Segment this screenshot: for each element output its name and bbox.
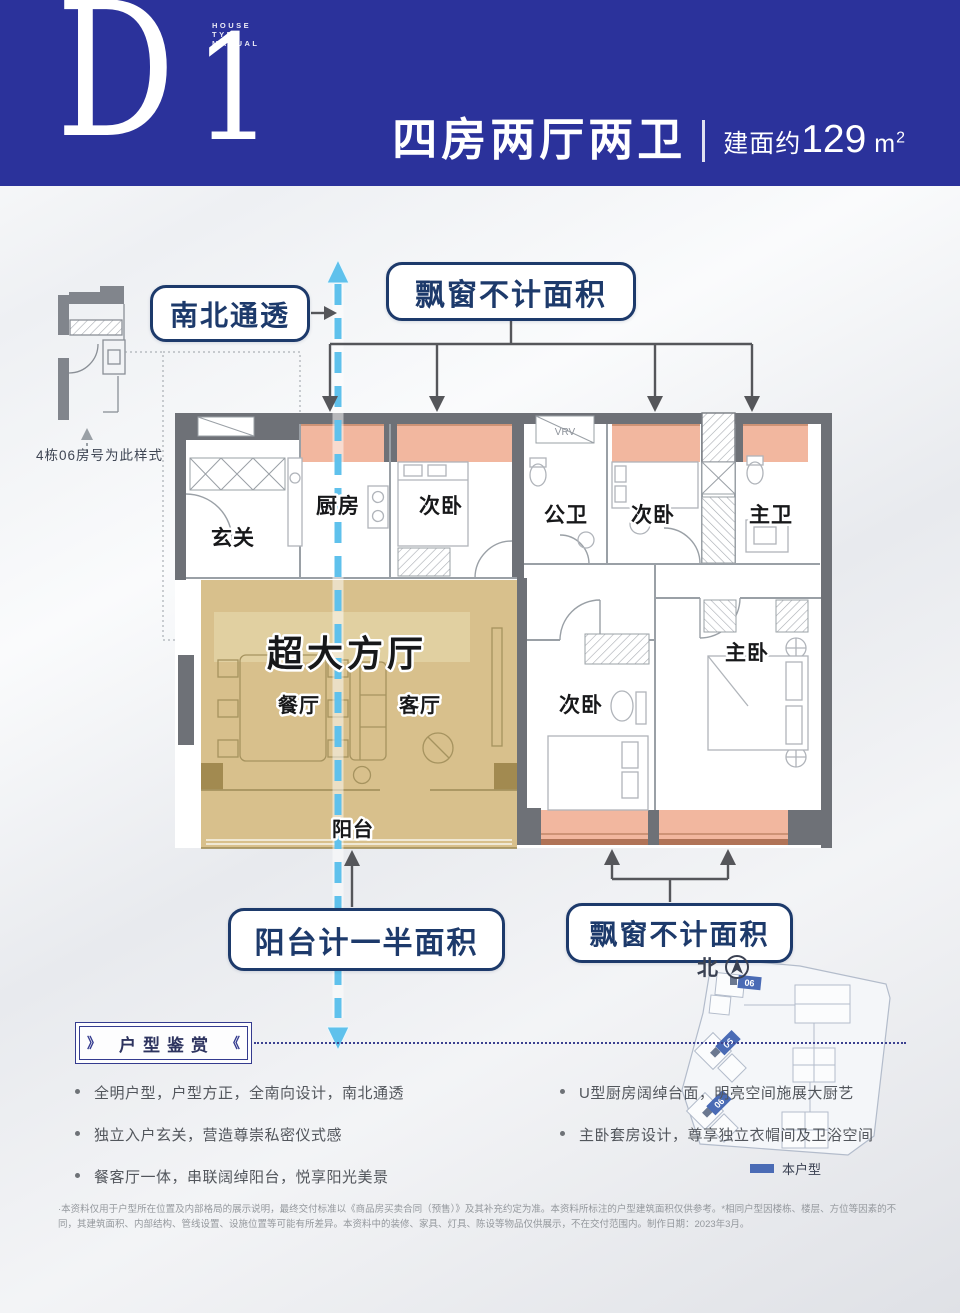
- header-title-group: 四房两厅两卫 建面约129 m2: [392, 117, 906, 162]
- bullet-dot-icon: [75, 1089, 80, 1094]
- bay-window: [540, 810, 648, 845]
- north-label: 北: [697, 952, 718, 982]
- bay-window: [658, 810, 788, 845]
- vrv-box: VRV: [536, 416, 594, 443]
- feature-item: 全明户型，户型方正，全南向设计，南北通透: [75, 1082, 404, 1103]
- house-type-page: D 1 HOUSE TYPE MANUAL 四房两厅两卫 建面约129 m2: [0, 0, 960, 1313]
- floor-plan: VRV: [175, 413, 832, 848]
- feature-text: 全明户型，户型方正，全南向设计，南北通透: [94, 1082, 404, 1103]
- room-label-entry: 玄关: [211, 526, 255, 550]
- bullet-dot-icon: [560, 1131, 565, 1136]
- room-label-living: 客厅: [398, 693, 441, 717]
- room-label-bedroom-top-left: 次卧: [419, 494, 463, 518]
- feature-item: U型厨房阔绰台面，明亮空间施展大厨艺: [560, 1082, 854, 1103]
- room-label-bedroom-top-right: 次卧: [631, 503, 675, 527]
- axis-arrow-down: [327, 1027, 349, 1050]
- feature-text: 餐客厅一体，串联阔绰阳台，悦享阳光美景: [94, 1166, 389, 1187]
- disclaimer-text: ·本资料仅用于户型所在位置及内部格局的展示说明，最终交付标准以《商品房买卖合同（…: [58, 1202, 910, 1232]
- room-label-bedroom-bottom: 次卧: [559, 693, 603, 717]
- bullet-dot-icon: [75, 1173, 80, 1178]
- logo-caption: HOUSE TYPE MANUAL: [212, 21, 260, 48]
- north-indicator: 北: [697, 952, 750, 982]
- logo-caption-line: MANUAL: [212, 39, 260, 48]
- room-label-dining: 餐厅: [278, 693, 320, 717]
- callout-bay-window-bottom: 飘窗不计面积: [566, 903, 793, 963]
- sample-unit-note: 4栋06房号为此样式: [36, 444, 163, 464]
- area-unit: m: [874, 130, 896, 158]
- area-prefix: 建面约: [723, 130, 801, 158]
- room-label-public-bath: 公卫: [544, 504, 588, 527]
- logo-letter: D: [56, 0, 175, 164]
- room-label-balcony: 阳台: [332, 817, 374, 841]
- bullet-dot-icon: [75, 1131, 80, 1136]
- chevron-left-icon: 《: [226, 1033, 240, 1053]
- floor-plan-canvas: VRV 玄关 厨房 次卧 公卫 次卧 主卫 超大方厅 餐厅 客厅: [0, 186, 960, 1313]
- room-label-grand-hall: 超大方厅: [267, 633, 427, 674]
- balcony-wall-stub: [494, 763, 517, 790]
- feature-item: 独立入户玄关，营造尊崇私密仪式感: [75, 1124, 342, 1145]
- room-label-master-bedroom: 主卧: [725, 642, 769, 665]
- feature-text: 独立入户玄关，营造尊崇私密仪式感: [94, 1124, 342, 1145]
- header-band: D 1 HOUSE TYPE MANUAL 四房两厅两卫 建面约129 m2: [0, 0, 960, 186]
- page-title: 四房两厅两卫: [392, 117, 686, 162]
- feature-text: U型厨房阔绰台面，明亮空间施展大厨艺: [579, 1082, 854, 1103]
- axis-arrow-up: [327, 260, 349, 283]
- feature-item: 主卧套房设计，尊享独立衣帽间及卫浴空间: [560, 1124, 874, 1145]
- room-label-kitchen: 厨房: [316, 494, 360, 518]
- appreciation-banner: 》 户型鉴赏 《: [75, 1022, 252, 1064]
- legend-label: 本户型: [782, 1159, 821, 1178]
- banner-dotted-rule: [254, 1042, 906, 1044]
- room-label-master-bath: 主卫: [749, 504, 793, 527]
- chevron-right-icon: 》: [87, 1033, 101, 1053]
- vrv-label: VRV: [555, 427, 576, 438]
- feature-text: 主卧套房设计，尊享独立衣帽间及卫浴空间: [579, 1124, 874, 1145]
- unit-sample-diagram: [58, 286, 125, 420]
- appreciation-banner-inner: 》 户型鉴赏 《: [79, 1026, 248, 1060]
- bullet-dot-icon: [560, 1089, 565, 1094]
- balcony-wall-stub: [201, 763, 223, 790]
- legend-swatch: [750, 1164, 774, 1173]
- site-legend: 本户型: [750, 1159, 821, 1178]
- feature-item: 餐客厅一体，串联阔绰阳台，悦享阳光美景: [75, 1166, 389, 1187]
- callout-bay-window-top: 飘窗不计面积: [386, 262, 636, 321]
- built-area: 建面约129 m2: [723, 120, 906, 162]
- logo-caption-line: HOUSE: [212, 21, 260, 30]
- area-value: 129: [801, 118, 866, 161]
- callout-north-south: 南北通透: [150, 285, 310, 342]
- compass-icon: [724, 954, 750, 980]
- area-sup: 2: [896, 130, 906, 147]
- appreciation-title: 户型鉴赏: [112, 1031, 215, 1056]
- logo-caption-line: TYPE: [212, 30, 260, 39]
- callout-balcony-half: 阳台计一半面积: [228, 908, 505, 971]
- title-divider: [702, 120, 705, 162]
